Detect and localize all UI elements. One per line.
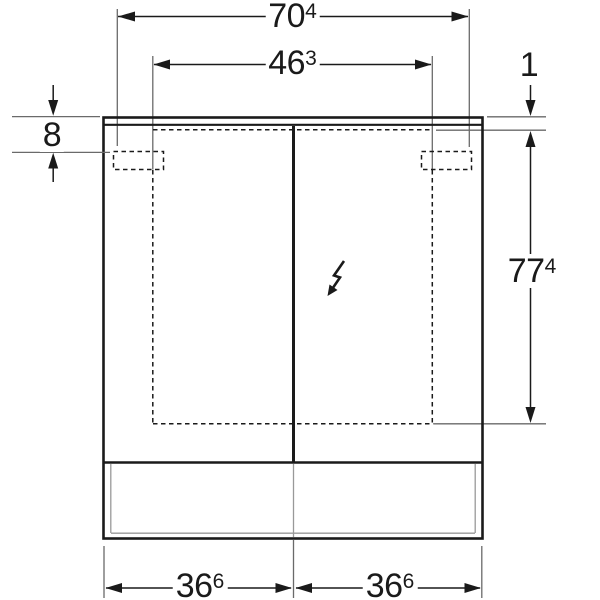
arrow-left-icon [106,583,123,593]
arrow-left-icon [154,60,171,70]
label-overall-width: 704 [265,0,320,33]
label-lid-thickness: 1 [517,48,541,82]
label-door-left-sup: 6 [213,570,225,593]
arrow-up-icon [48,153,58,169]
arrow-right-icon [415,60,432,70]
label-overall-width-value: 70 [268,0,305,35]
label-fixing-width: 463 [265,46,320,80]
arrow-left-icon [118,12,135,22]
technical-drawing: 704 463 1 8 774 366 366 [0,0,600,600]
label-height-sup: 4 [545,255,557,278]
label-door-left: 366 [173,569,228,600]
arrow-right-icon [276,583,293,593]
arrow-right-icon [465,583,482,593]
extension-lines [104,9,546,598]
label-top-offset-value: 8 [43,116,61,154]
label-fixing-width-sup: 3 [305,47,317,70]
dimension-lid-thickness [526,85,536,116]
arrow-left-icon [296,583,313,593]
arrow-right-icon [452,12,469,22]
mounting-bracket-left [114,152,164,170]
arrow-down-icon [526,407,536,423]
mounting-bracket-right [422,152,472,170]
lightning-zigzag [333,261,345,289]
arrow-up-icon [526,131,536,147]
label-door-right-sup: 6 [403,570,415,593]
drawing-canvas [0,0,600,600]
label-fixing-width-value: 46 [268,44,305,82]
lightning-arrow-icon [328,261,345,296]
label-top-offset: 8 [40,118,64,152]
light-panel-lines [111,464,475,537]
label-height: 774 [505,254,560,288]
arrow-down-icon [526,100,536,116]
label-door-right-value: 36 [366,567,403,600]
label-overall-width-sup: 4 [305,0,317,23]
label-lid-thickness-value: 1 [520,46,538,84]
label-door-right: 366 [363,569,418,600]
label-height-value: 77 [508,252,545,290]
label-door-left-value: 36 [176,567,213,600]
cabinet [104,118,483,539]
arrow-down-icon [48,100,58,116]
